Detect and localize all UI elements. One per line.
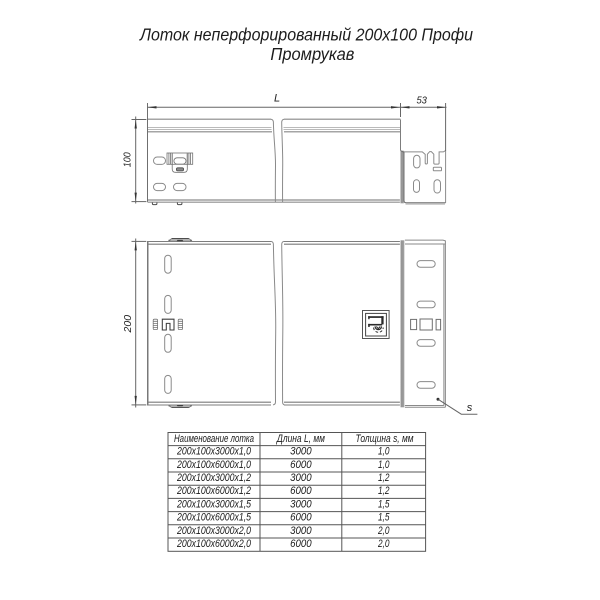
svg-text:200х100х6000х1,5: 200х100х6000х1,5 — [176, 512, 251, 524]
svg-text:1,0: 1,0 — [378, 446, 390, 458]
svg-text:200: 200 — [123, 314, 134, 333]
svg-text:200х100х3000х1,2: 200х100х3000х1,2 — [176, 472, 251, 484]
svg-text:Длина L, мм: Длина L, мм — [276, 433, 325, 445]
svg-text:3000: 3000 — [290, 472, 312, 484]
svg-text:200х100х6000х1,0: 200х100х6000х1,0 — [176, 459, 251, 471]
svg-text:2,0: 2,0 — [377, 538, 389, 550]
svg-text:Лоток неперфорированный 200х10: Лоток неперфорированный 200х100 Профи — [139, 24, 473, 44]
svg-text:6000: 6000 — [290, 459, 312, 471]
svg-text:s: s — [467, 402, 473, 414]
svg-text:1,0: 1,0 — [378, 459, 390, 471]
svg-text:6000: 6000 — [290, 485, 312, 497]
svg-text:200х100х6000х1,2: 200х100х6000х1,2 — [176, 485, 251, 497]
svg-text:200х100х6000х2,0: 200х100х6000х2,0 — [176, 538, 251, 550]
svg-text:L: L — [274, 93, 280, 105]
svg-text:100: 100 — [122, 152, 133, 167]
svg-text:2,0: 2,0 — [377, 525, 389, 537]
svg-text:1,5: 1,5 — [378, 512, 390, 524]
svg-text:3000: 3000 — [290, 498, 312, 510]
svg-text:Толщина s, мм: Толщина s, мм — [356, 433, 415, 445]
svg-text:6000: 6000 — [290, 538, 312, 550]
svg-text:1,2: 1,2 — [378, 485, 390, 497]
svg-text:1,5: 1,5 — [378, 498, 390, 510]
svg-text:200х100х3000х1,5: 200х100х3000х1,5 — [176, 498, 251, 510]
svg-text:Промрукав: Промрукав — [270, 44, 354, 64]
svg-text:1,2: 1,2 — [378, 472, 390, 484]
svg-text:200х100х3000х2,0: 200х100х3000х2,0 — [176, 525, 251, 537]
svg-text:6000: 6000 — [290, 512, 312, 524]
svg-text:3000: 3000 — [290, 446, 312, 458]
svg-text:Наименование лотка: Наименование лотка — [174, 433, 254, 445]
svg-text:3000: 3000 — [290, 525, 312, 537]
svg-text:200х100х3000х1,0: 200х100х3000х1,0 — [176, 446, 251, 458]
svg-text:53: 53 — [416, 94, 427, 106]
